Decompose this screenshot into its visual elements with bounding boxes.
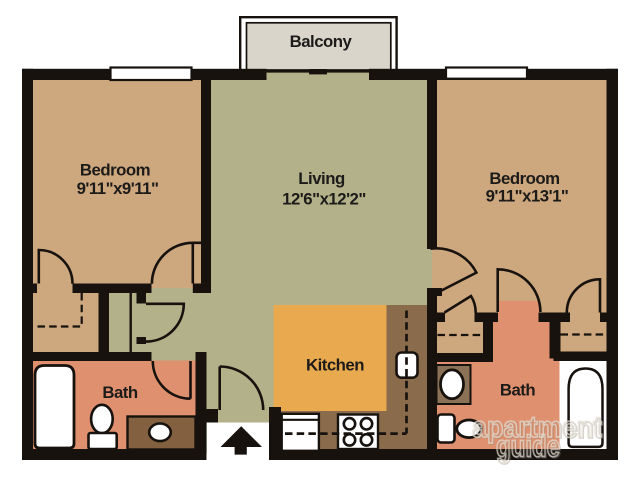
svg-text:Living: Living	[298, 169, 345, 188]
svg-text:Bedroom: Bedroom	[80, 161, 150, 180]
svg-text:Bath: Bath	[102, 383, 138, 402]
svg-text:9'11"x9'11": 9'11"x9'11"	[77, 179, 159, 198]
svg-text:Bath: Bath	[500, 381, 536, 400]
svg-text:Kitchen: Kitchen	[306, 356, 364, 375]
svg-text:Bedroom: Bedroom	[489, 169, 559, 188]
svg-text:guide: guide	[496, 429, 560, 464]
svg-text:12'6"x12'2": 12'6"x12'2"	[282, 189, 366, 208]
svg-text:9'11"x13'1": 9'11"x13'1"	[486, 187, 569, 206]
svg-text:Balcony: Balcony	[290, 32, 353, 51]
